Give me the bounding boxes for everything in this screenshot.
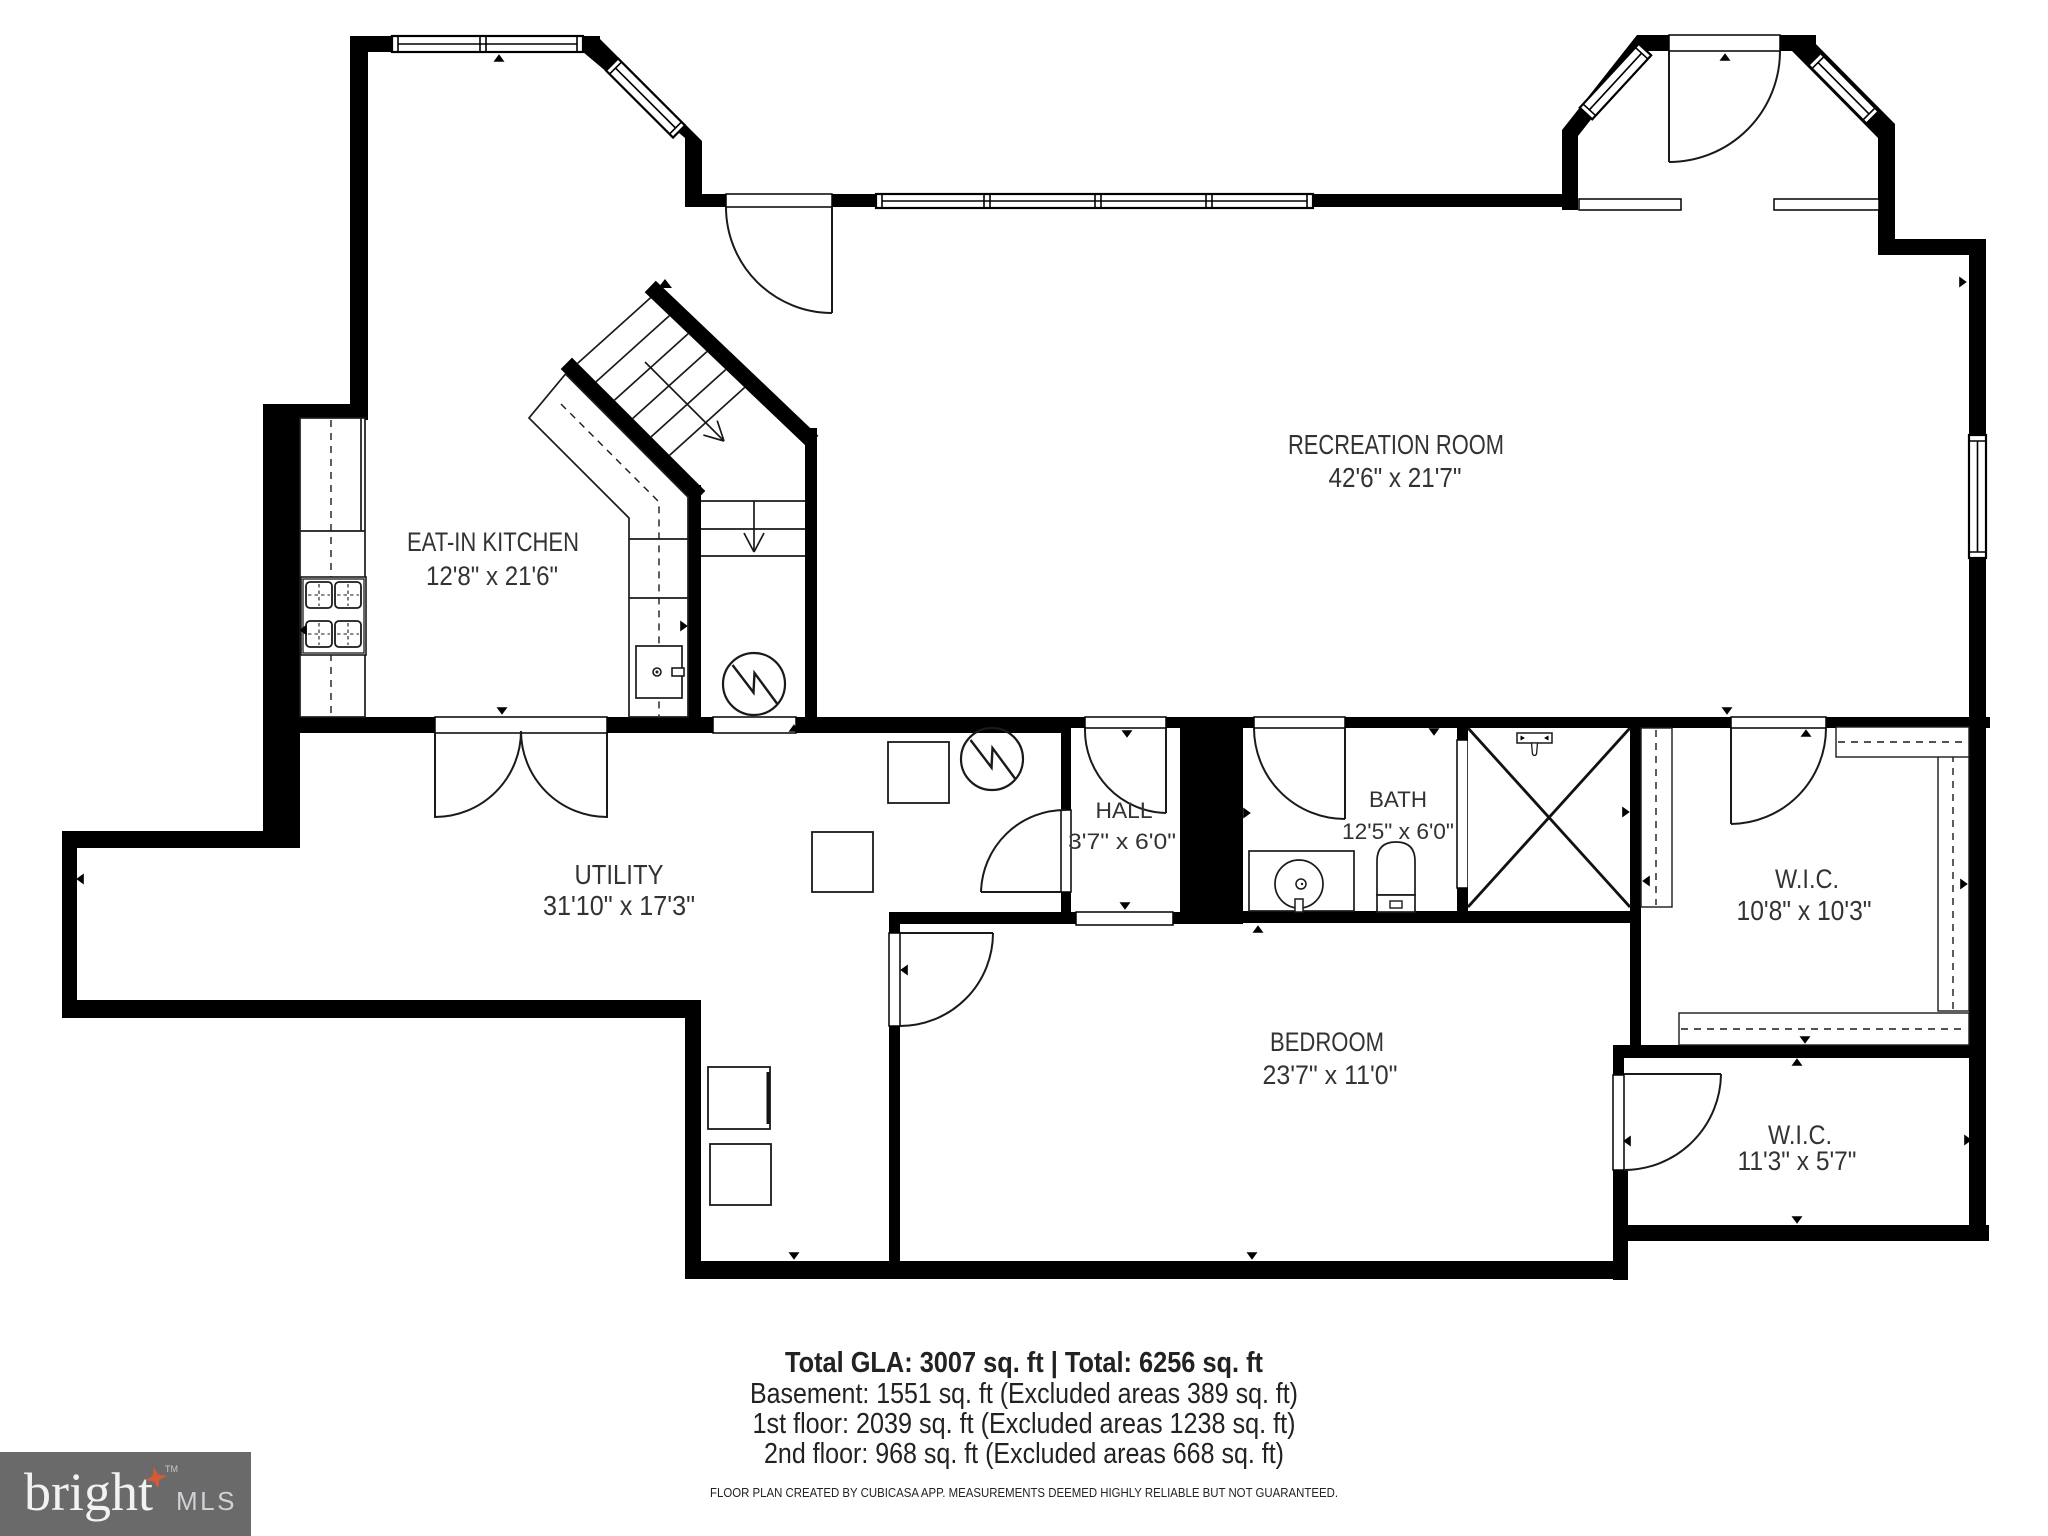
svg-text:10'8" x 10'3": 10'8" x 10'3" [1737, 895, 1872, 926]
svg-text:3'7" x 6'0": 3'7" x 6'0" [1068, 829, 1176, 854]
svg-text:42'6" x 21'7": 42'6" x 21'7" [1329, 462, 1462, 493]
svg-text:12'5" x 6'0": 12'5" x 6'0" [1342, 819, 1454, 844]
svg-text:2nd floor: 968 sq. ft (Exclude: 2nd floor: 968 sq. ft (Excluded areas 66… [764, 1438, 1284, 1470]
svg-text:1st floor: 2039 sq. ft (Exclud: 1st floor: 2039 sq. ft (Excluded areas 1… [753, 1408, 1296, 1440]
svg-text:MLS: MLS [176, 1486, 237, 1516]
svg-text:BEDROOM: BEDROOM [1270, 1027, 1384, 1057]
svg-text:W.I.C.: W.I.C. [1775, 864, 1839, 894]
svg-text:EAT-IN KITCHEN: EAT-IN KITCHEN [407, 527, 579, 557]
svg-text:FLOOR PLAN CREATED BY CUBICASA: FLOOR PLAN CREATED BY CUBICASA APP. MEAS… [710, 1485, 1338, 1500]
svg-text:bright: bright [24, 1462, 153, 1522]
svg-text:UTILITY: UTILITY [575, 859, 664, 890]
svg-text:Basement: 1551 sq. ft (Exclude: Basement: 1551 sq. ft (Excluded areas 38… [750, 1378, 1298, 1410]
svg-text:23'7" x 11'0": 23'7" x 11'0" [1263, 1060, 1398, 1090]
svg-text:RECREATION ROOM: RECREATION ROOM [1288, 429, 1504, 460]
svg-text:12'8" x 21'6": 12'8" x 21'6" [426, 561, 558, 591]
svg-text:HALL: HALL [1096, 798, 1153, 823]
svg-text:TM: TM [165, 1464, 178, 1474]
svg-text:BATH: BATH [1369, 787, 1427, 812]
svg-text:11'3" x 5'7": 11'3" x 5'7" [1738, 1146, 1857, 1176]
svg-text:31'10" x 17'3": 31'10" x 17'3" [543, 890, 695, 921]
svg-text:Total GLA: 3007 sq. ft | Total: Total GLA: 3007 sq. ft | Total: 6256 sq.… [785, 1347, 1263, 1379]
